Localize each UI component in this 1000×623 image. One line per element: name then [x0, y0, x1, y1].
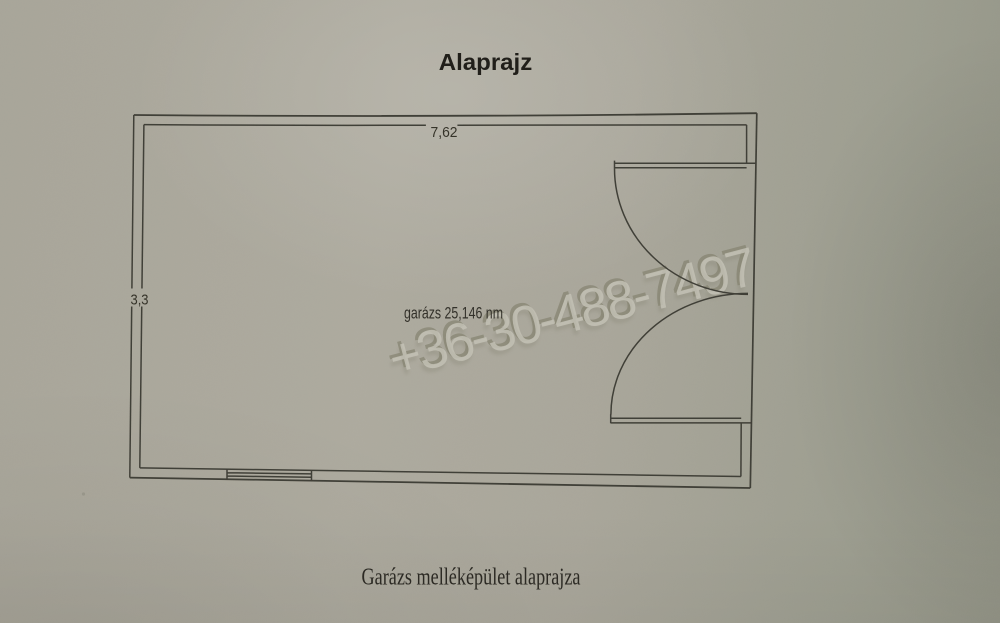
svg-text:Alaprajz: Alaprajz: [439, 49, 533, 75]
svg-text:Garázs melléképület alaprajza: Garázs melléképület alaprajza: [362, 565, 581, 591]
svg-text:7,62: 7,62: [431, 125, 458, 141]
svg-text:garázs 25,146 nm: garázs 25,146 nm: [404, 305, 503, 323]
svg-text:3,3: 3,3: [131, 292, 149, 309]
